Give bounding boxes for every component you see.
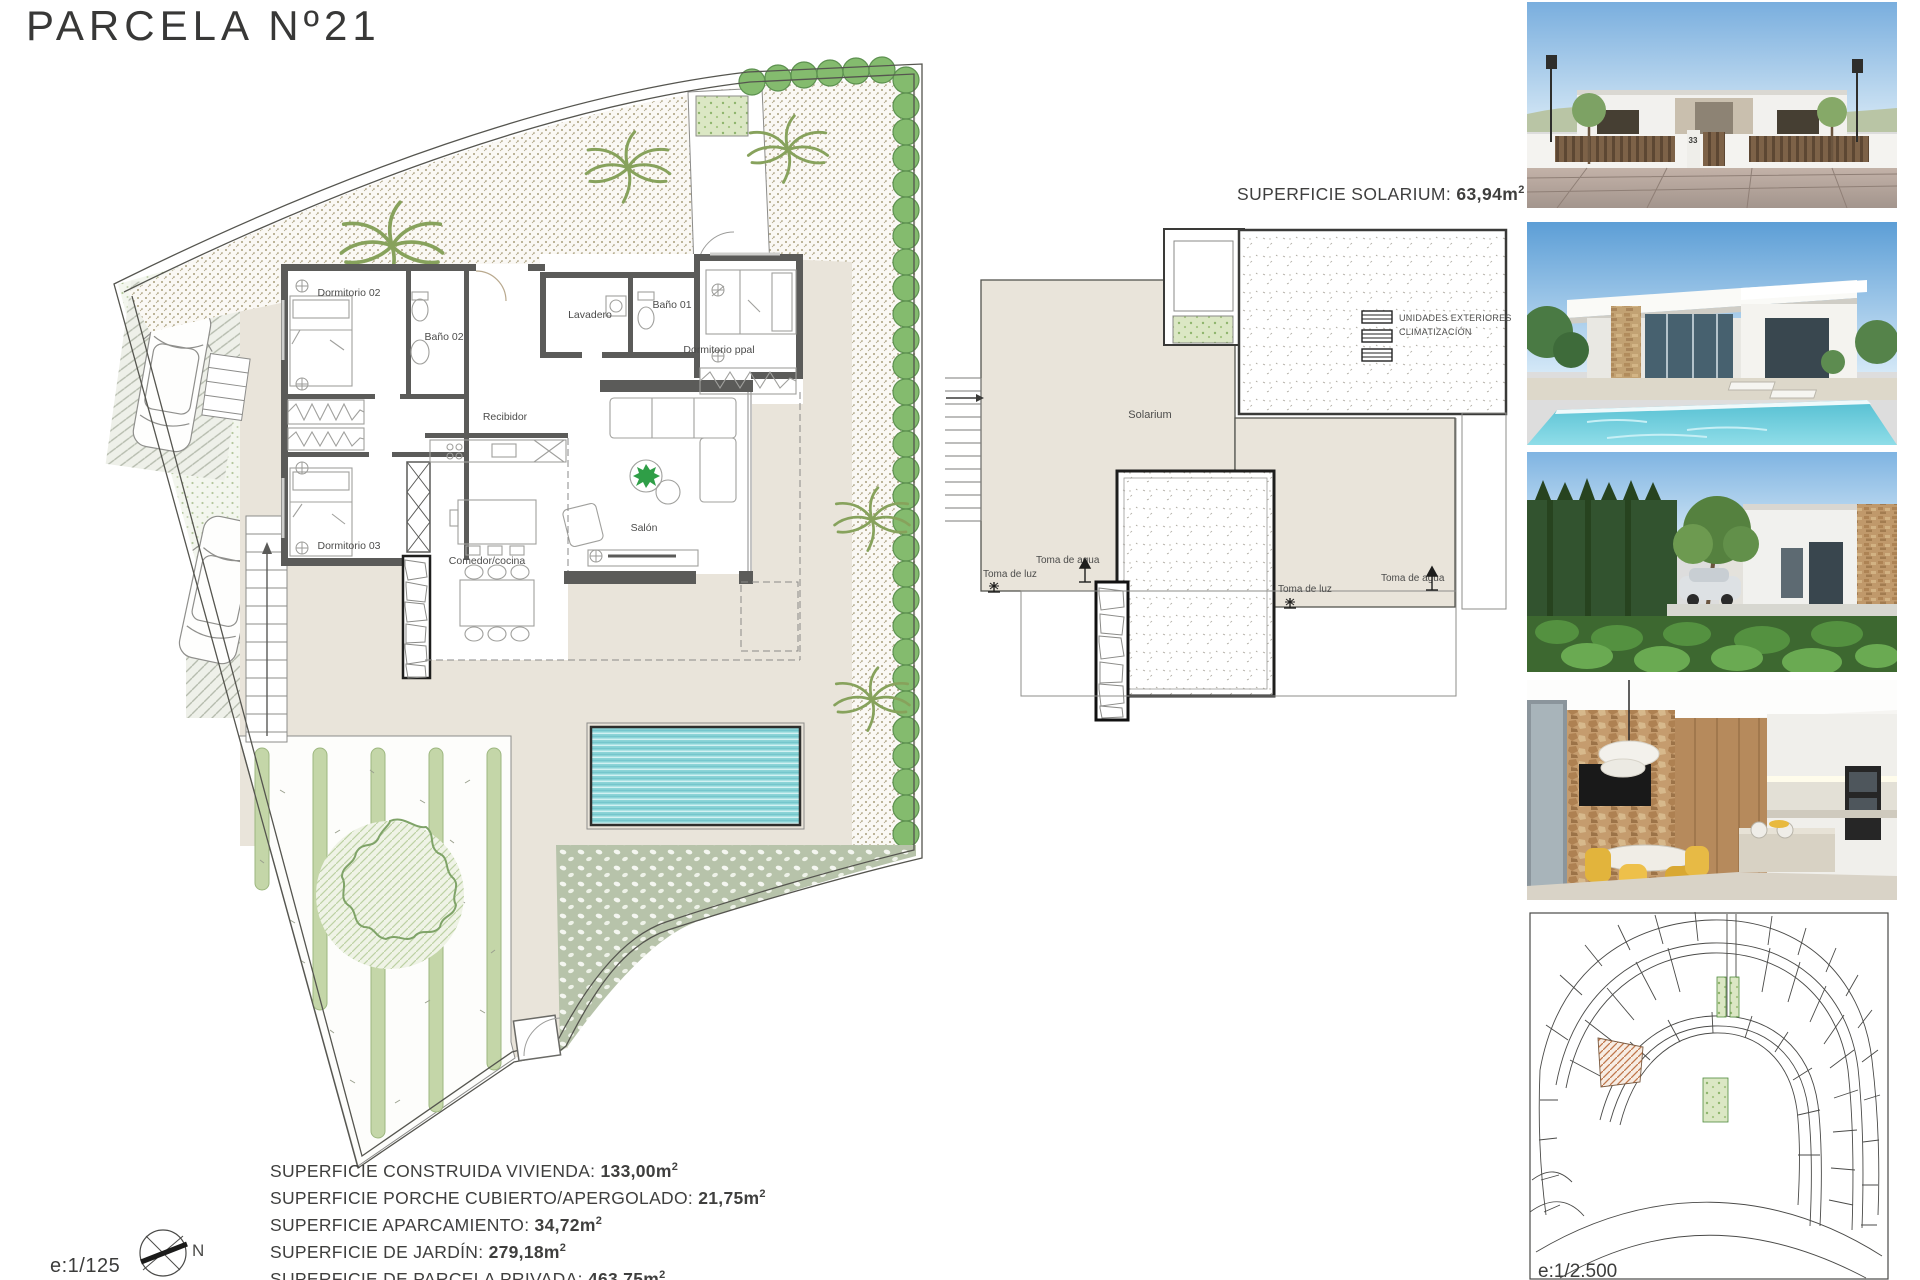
house-number: 33 [1689,136,1698,145]
solarium-plan: UNIDADES EXTERIORES CLIMATIZACIÓN [945,229,1512,720]
terrace-deck [1527,378,1897,400]
wood-fence-right [1749,136,1869,162]
solarium-heading-sup: 2 [1518,184,1525,196]
surface-value: 463,75m [588,1269,659,1280]
highlighted-parcel [1598,1038,1643,1087]
garden-gate [513,1015,560,1060]
stairwell-block [1164,229,1244,345]
surface-line: SUPERFICIE APARCAMIENTO: 34,72m2 [270,1208,766,1235]
surface-value: 279,18m [489,1242,560,1262]
map-scale-label: e:1/2.500 [1538,1261,1617,1280]
pantry-shelves [407,462,430,552]
surface-sup: 2 [560,1242,566,1254]
surface-value: 21,75m [698,1188,759,1208]
solarium-stairs [945,378,984,521]
surface-label: SUPERFICIE DE PARCELA PRIVADA: [270,1269,588,1280]
gravel-roof-area: UNIDADES EXTERIORES CLIMATIZACIÓN [1239,230,1512,414]
label-dormitorio03: Dormitorio 03 [317,540,380,552]
surface-sup: 2 [672,1161,678,1173]
solarium-heading-label: SUPERFICIE SOLARIUM: [1237,184,1456,204]
solarium-stone-column [1096,582,1128,720]
label-unidades-1: UNIDADES EXTERIORES [1399,313,1512,323]
label-toma-luz-left: Toma de luz [983,569,1037,580]
countertop [1767,810,1897,818]
label-solarium-room: Solarium [1128,409,1171,421]
surface-summary: SUPERFICIE CONSTRUIDA VIVIENDA: 133,00m2… [270,1154,766,1280]
surface-line: SUPERFICIE DE PARCELA PRIVADA: 463,75m2 [270,1262,766,1280]
label-bano01: Baño 01 [652,299,691,311]
pebble-paving [556,845,916,1052]
photo-pool-view [1527,222,1897,445]
surface-label: SUPERFICIE DE JARDÍN: [270,1242,489,1262]
label-unidades-2: CLIMATIZACIÓN [1399,327,1472,337]
surface-label: SUPERFICIE APARCAMIENTO: [270,1215,535,1235]
pergola-roof [1117,471,1274,696]
photo-interior-view [1527,680,1897,900]
pool [1527,400,1897,445]
solarium-heading: SUPERFICIE SOLARIUM: 63,94m2 [1237,184,1525,205]
label-toma-agua-left: Toma de agua [1036,555,1100,566]
compass-north-label: N [192,1241,204,1260]
ac-units [1362,311,1392,361]
pool [587,723,804,829]
photo-street-view: 33 [1527,2,1897,208]
surface-line: SUPERFICIE CONSTRUIDA VIVIENDA: 133,00m2 [270,1154,766,1181]
vegetable-rows [1527,616,1897,672]
label-bano02: Baño 02 [424,331,463,343]
site-map: e:1/2.500 [1530,912,1888,1280]
cypress-hedge [1527,478,1677,616]
big-tree-canopy [316,821,464,969]
plan-sheet: PARCELA Nº21 [0,0,1920,1280]
solarium-heading-value: 63,94m [1456,184,1518,204]
entrance-walkway [688,88,770,268]
compass-needle [141,1244,187,1262]
label-comedor: Comedor/cocina [449,555,526,567]
surface-sup: 2 [759,1188,765,1200]
compass: N [140,1230,204,1276]
surface-line: SUPERFICIE PORCHE CUBIERTO/APERGOLADO: 2… [270,1181,766,1208]
label-dormitorio-ppal: Dormitorio ppal [683,344,754,356]
yellow-chair [1585,848,1611,882]
fruit-bowl [1769,820,1789,828]
label-toma-luz-right: Toma de luz [1278,584,1332,595]
label-lavadero: Lavadero [568,309,612,321]
surface-value: 34,72m [535,1215,596,1235]
surface-label: SUPERFICIE PORCHE CUBIERTO/APERGOLADO: [270,1188,698,1208]
plan-scale-label: e:1/125 [50,1255,120,1277]
wood-fence-left [1555,136,1675,162]
surface-line: SUPERFICIE DE JARDÍN: 279,18m2 [270,1235,766,1262]
surface-value: 133,00m [601,1161,672,1181]
yellow-chair [1685,846,1709,876]
gate [1703,132,1725,166]
label-recibidor: Recibidor [483,411,528,423]
surface-sup: 2 [659,1269,665,1280]
label-dormitorio02: Dormitorio 02 [317,287,380,299]
surface-label: SUPERFICIE CONSTRUIDA VIVIENDA: [270,1161,601,1181]
garden [239,736,515,1166]
surface-sup: 2 [596,1215,602,1227]
villa-facade [1577,90,1847,138]
label-salon: Salón [631,522,658,534]
photo-garden-view [1527,452,1897,672]
